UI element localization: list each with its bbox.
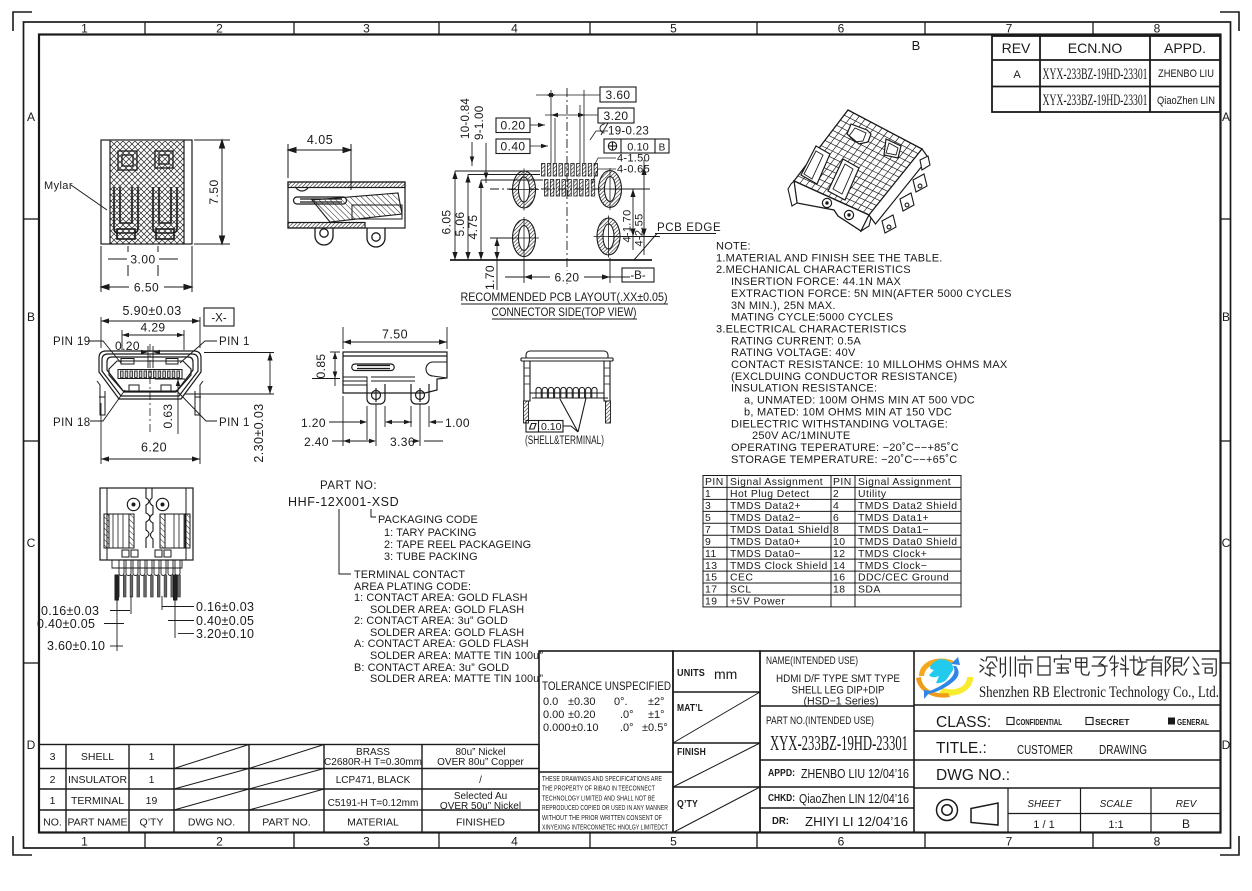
svg-text:PCB EDGE: PCB EDGE [657,222,721,234]
svg-text:2: 2 [216,22,223,36]
svg-text:0.16±0.03: 0.16±0.03 [196,600,254,614]
svg-text:5: 5 [705,513,711,524]
svg-text:1: 1 [705,489,711,500]
svg-text:7.50: 7.50 [207,179,221,204]
svg-text:mm: mm [714,666,737,682]
svg-text:6.05: 6.05 [440,210,454,235]
svg-text:DRAWING: DRAWING [1099,743,1147,757]
svg-text:6: 6 [838,835,845,849]
svg-text:REV: REV [1002,40,1031,56]
svg-text:PART NO.: PART NO. [262,817,310,829]
svg-text:1: 1 [81,835,88,849]
svg-text:UNITS: UNITS [677,668,705,679]
svg-text:Utility: Utility [858,489,887,500]
svg-text:WITHOUT THE PRIOR WRITTEN CON: WITHOUT THE PRIOR WRITTEN CONSENT OF [542,813,662,822]
svg-text:TOLERANCE UNSPECIFIED: TOLERANCE UNSPECIFIED [542,681,671,693]
svg-text:5.06: 5.06 [453,212,467,237]
svg-text:GENERAL: GENERAL [1177,717,1209,727]
svg-text:TMDS Data2+: TMDS Data2+ [730,501,801,512]
svg-text:B: B [27,310,35,324]
svg-text:HHF-12X001-XSD: HHF-12X001-XSD [288,495,399,509]
svg-text:(HSD−1 Series): (HSD−1 Series) [804,696,879,708]
svg-text:+5V Power: +5V Power [730,597,785,608]
svg-text:1: 1 [81,22,88,36]
svg-text:0.20: 0.20 [115,339,140,353]
svg-text:OPERATING TEPERATURE: −20˚C−: OPERATING TEPERATURE: −20˚C−−+85˚C [731,442,959,454]
svg-text:PIN 18: PIN 18 [53,417,91,429]
svg-text:7: 7 [1006,22,1013,36]
svg-text:TERMINAL CONTACT: TERMINAL CONTACT [354,569,465,581]
svg-text:2: 2 [216,835,223,849]
svg-text:DDC/CEC Ground: DDC/CEC Ground [858,573,949,584]
svg-text:PART NO.(INTENDED USE): PART NO.(INTENDED USE) [766,715,874,727]
svg-text:7: 7 [705,525,711,536]
svg-text:A: A [1013,69,1021,81]
svg-text:TERMINAL: TERMINAL [71,795,124,807]
svg-text:±0.10: ±0.10 [571,722,598,734]
svg-text:1.70: 1.70 [483,265,497,290]
svg-text:(EXCLDUING CONDUCTOR RESISTA: (EXCLDUING CONDUCTOR RESISTANCE) [731,371,957,383]
svg-text:DR:: DR: [772,816,789,827]
svg-text:1.00: 1.00 [445,416,470,430]
svg-text:3: 3 [363,22,370,36]
svg-text:A: A [27,110,35,124]
svg-text:TMDS Clock−: TMDS Clock− [858,561,927,572]
svg-text:RATING CURRENT: 0.5A: RATING CURRENT: 0.5A [731,335,862,347]
svg-text:SOLDER AREA: MATTE TIN 100: SOLDER AREA: MATTE TIN 100u” [370,673,543,685]
svg-text:18: 18 [833,585,845,596]
svg-text:4: 4 [511,835,518,849]
svg-text:6: 6 [833,513,839,524]
svg-text:C: C [27,536,36,550]
svg-text:MATING CYCLE:5000 CYCLES: MATING CYCLE:5000 CYCLES [731,312,893,324]
svg-text:THE PROPERTY OF RIBAO IN TEECO: THE PROPERTY OF RIBAO IN TEECONNECT [542,784,655,793]
svg-text:A: CONTACT AREA: GOLD FLAS: A: CONTACT AREA: GOLD FLASH [354,638,529,650]
svg-text:±1°: ±1° [648,709,665,721]
svg-text:LCP471, BLACK: LCP471, BLACK [336,775,411,786]
svg-text:HDMI D/F TYPE SMT TYPE: HDMI D/F TYPE SMT TYPE [776,673,900,685]
svg-text:C: C [1222,536,1231,550]
svg-text:QiaoZhen LIN 12/04’16: QiaoZhen LIN 12/04’16 [799,792,909,806]
svg-text:5: 5 [670,835,677,849]
svg-text:±0.5°: ±0.5° [642,722,668,734]
svg-text:16: 16 [833,573,845,584]
svg-text:a, UNMATED: 100M OHMS MIN: a, UNMATED: 100M OHMS MIN AT 500 VDC [744,395,975,407]
svg-text:SECRET: SECRET [1095,717,1130,727]
svg-text:b, MATED: 10M OHMS MIN: b, MATED: 10M OHMS MIN AT 150 VDC [744,406,952,418]
svg-text:±2°: ±2° [648,696,665,708]
svg-text:3.ELECTRICAL CHARACTERISTICS: 3.ELECTRICAL CHARACTERISTICS [716,324,907,336]
svg-text:0.63: 0.63 [161,404,175,429]
svg-text:REV: REV [1176,799,1198,810]
svg-text:19-0.23: 19-0.23 [608,126,649,138]
svg-text:OVER 80u” Copper: OVER 80u” Copper [437,757,524,768]
svg-text:1:1: 1:1 [1108,819,1123,831]
svg-text:CLASS:: CLASS: [936,714,991,731]
svg-text:4.75: 4.75 [466,215,480,240]
svg-text:0.10: 0.10 [541,421,562,433]
svg-text:2: TAPE REEL PACKAGEING: 2: TAPE REEL PACKAGEING [384,539,531,551]
svg-text:OVER 50u” Nickel: OVER 50u” Nickel [440,801,521,812]
svg-text:SDA: SDA [858,585,881,596]
svg-text:13: 13 [705,561,717,572]
svg-text:D: D [27,738,36,752]
svg-text:(SHELL&TERMINAL): (SHELL&TERMINAL) [525,435,604,447]
svg-text:CEC: CEC [730,573,753,584]
svg-text:2: CONTACT AREA: 3u” GOLD: 2: CONTACT AREA: 3u” GOLD [354,615,508,627]
svg-text:1: 1 [50,795,56,807]
svg-text:15: 15 [705,573,717,584]
svg-text:-B-: -B- [630,270,646,282]
svg-text:DWG NO.:: DWG NO.: [936,767,1010,784]
svg-text:THESE DRAWINGS AND SPECIFICATI: THESE DRAWINGS AND SPECIFICATIONS ARE [542,774,662,783]
svg-text:XYX-233BZ-19HD-23301: XYX-233BZ-19HD-23301 [1043,92,1148,109]
svg-text:0.40±0.05: 0.40±0.05 [37,617,95,631]
svg-text:3N MIN.), 25N MAX.: 3N MIN.), 25N MAX. [731,300,836,312]
svg-text:TMDS Data1+: TMDS Data1+ [858,513,929,524]
svg-text:PIN 1: PIN 1 [219,417,250,429]
svg-text:APPD:: APPD: [768,768,795,779]
svg-text:APPD.: APPD. [1164,40,1206,56]
svg-text:A: A [1222,110,1230,124]
svg-text:3.20±0.10: 3.20±0.10 [196,627,254,641]
svg-text:0.16±0.03: 0.16±0.03 [41,604,99,618]
svg-text:6.50: 6.50 [134,281,159,295]
svg-text:Signal Assignment: Signal Assignment [730,477,823,488]
svg-text:12: 12 [833,549,845,560]
svg-text:REPRODUCED COPIED OR USED IN A: REPRODUCED COPIED OR USED IN ANY MANNER [542,803,668,812]
svg-text:6: 6 [838,22,845,36]
svg-text:TECHNOLOGY LIMITED AND SHALL N: TECHNOLOGY LIMITED AND SHALL NOT BE [542,793,655,802]
svg-text:XYX-233BZ-19HD-23301: XYX-233BZ-19HD-23301 [770,731,908,755]
svg-text:ZHENBO LIU: ZHENBO LIU [1158,68,1214,80]
svg-text:6.20: 6.20 [555,271,580,285]
svg-text:10-0.84: 10-0.84 [460,98,472,139]
svg-text:.0°: .0° [620,722,634,734]
svg-text:QiaoZhen LIN: QiaoZhen LIN [1157,95,1215,107]
svg-text:7: 7 [1006,835,1013,849]
svg-text:Shenzhen RB Electronic Technol: Shenzhen RB Electronic Technology Co., L… [979,684,1219,701]
svg-text:19: 19 [705,597,717,608]
svg-text:TMDS Clock Shield: TMDS Clock Shield [730,561,828,572]
svg-text:C2680R-H T=0.30mm: C2680R-H T=0.30mm [324,757,422,768]
svg-text:B: B [659,143,666,154]
svg-text:1 / 1: 1 / 1 [1033,819,1054,831]
svg-text:NOTE:: NOTE: [716,241,751,253]
svg-text:RATING VOLTAGE: 40V: RATING VOLTAGE: 40V [731,347,856,359]
svg-text:7.50: 7.50 [382,328,408,342]
svg-text:TMDS Data0 Shield: TMDS Data0 Shield [858,537,957,548]
svg-text:TITLE.:: TITLE.: [936,740,987,757]
svg-text:0.40: 0.40 [501,140,526,154]
svg-text:3: 3 [705,501,711,512]
svg-text:TMDS Clock+: TMDS Clock+ [858,549,927,560]
svg-text:PIN 19: PIN 19 [53,336,91,348]
svg-text:PACKAGING CODE: PACKAGING CODE [378,514,478,526]
svg-text:1: CONTACT AREA: GOLD FLAS: 1: CONTACT AREA: GOLD FLASH [354,592,528,604]
svg-text:B: B [912,38,921,53]
svg-text:0.0: 0.0 [543,696,558,708]
svg-text:Q’TY: Q’TY [140,817,164,829]
svg-text:0.85: 0.85 [314,354,328,379]
svg-text:0.00: 0.00 [543,709,564,721]
svg-text:DWG NO.: DWG NO. [188,817,235,829]
svg-text:3.60: 3.60 [606,88,631,102]
svg-text:3.60±0.10: 3.60±0.10 [47,639,105,653]
svg-text:3: 3 [50,751,56,763]
svg-text:Q’TY: Q’TY [677,799,698,810]
svg-text:CHKD:: CHKD: [768,793,795,804]
svg-text:B: B [1182,817,1190,831]
svg-text:4-1.70: 4-1.70 [622,210,634,243]
svg-text:8: 8 [1154,22,1161,36]
svg-text:1: 1 [149,751,155,763]
svg-text:2: 2 [50,774,56,786]
svg-text:CUSTOMER: CUSTOMER [1017,743,1073,757]
svg-text:1.MATERIAL AND FINISH SEE: 1.MATERIAL AND FINISH SEE THE TABLE. [716,252,943,264]
svg-text:PIN: PIN [705,477,724,488]
svg-text:5.90±0.03: 5.90±0.03 [122,304,181,318]
svg-text:SCALE: SCALE [1100,799,1133,810]
svg-text:STORAGE TEMPERATURE: −20˚C−−: STORAGE TEMPERATURE: −20˚C−−+65˚C [731,454,958,466]
svg-text:PIN: PIN [833,477,852,488]
svg-text:RECOMMENDED PCB LAYOUT(.XX±0: RECOMMENDED PCB LAYOUT(.XX±0.05) [461,290,668,304]
svg-text:Signal Assignment: Signal Assignment [858,477,951,488]
svg-text:TMDS Data0+: TMDS Data0+ [730,537,801,548]
svg-text:D: D [1222,738,1231,752]
svg-text:6.20: 6.20 [141,441,167,455]
svg-text:ZHIYI LI 12/04’16: ZHIYI LI 12/04’16 [805,815,908,829]
svg-text:MAT’L: MAT’L [677,703,703,714]
svg-text:XYX-233BZ-19HD-23301: XYX-233BZ-19HD-23301 [1043,66,1148,83]
svg-text:PART NAME: PART NAME [67,817,127,829]
svg-text:250V AC/1MINUTE: 250V AC/1MINUTE [752,430,851,442]
svg-text:PART NO:: PART NO: [320,480,377,492]
svg-text:2.MECHANICAL CHARACTERISTICS: 2.MECHANICAL CHARACTERISTICS [716,264,911,276]
svg-text:-X-: -X- [211,313,227,325]
svg-text:INSERTION FORCE: 44.1N MA: INSERTION FORCE: 44.1N MAX [731,276,902,288]
svg-text:NAME(INTENDED USE): NAME(INTENDED USE) [766,655,858,667]
svg-text:INSULATOR: INSULATOR [68,774,128,786]
svg-text:SOLDER AREA: MATTE TIN 100: SOLDER AREA: MATTE TIN 100u” [370,650,543,662]
svg-text:Hot Plug Detect: Hot Plug Detect [730,489,810,500]
svg-text:SCL: SCL [730,585,752,596]
svg-text:CONNECTOR SIDE(TOP VIEW): CONNECTOR SIDE(TOP VIEW) [492,305,637,319]
svg-text:2: 2 [833,489,839,500]
svg-text:3.20: 3.20 [604,109,629,123]
svg-text:14: 14 [833,561,845,572]
svg-text:2.40: 2.40 [304,435,329,449]
svg-text:19: 19 [146,795,158,807]
svg-text:1: 1 [149,774,155,786]
svg-text:4: 4 [511,22,518,36]
svg-text:0°.: 0°. [614,696,628,708]
svg-text:1: TARY PACKING: 1: TARY PACKING [384,527,477,539]
svg-text:ZHENBO LIU 12/04’16: ZHENBO LIU 12/04’16 [801,767,909,781]
svg-text:±0.20: ±0.20 [568,709,595,721]
svg-text:3.36: 3.36 [390,435,415,449]
svg-text:MATERIAL: MATERIAL [347,817,399,829]
svg-text:4-2.55: 4-2.55 [634,214,646,247]
svg-text:TMDS Data0−: TMDS Data0− [730,549,801,560]
svg-text:XINYEXING INTERCONNETEC HNOLGY: XINYEXING INTERCONNETEC HNOLGY LIMITEDCT [542,823,668,832]
svg-text:PIN 1: PIN 1 [219,336,250,348]
svg-text:INSULATION RESISTANCE:: INSULATION RESISTANCE: [731,383,877,395]
svg-text:9-1.00: 9-1.00 [474,106,486,140]
svg-text:8: 8 [833,525,839,536]
svg-text:10: 10 [833,537,845,548]
svg-text:/: / [479,775,482,786]
svg-text:C5191-H T=0.12mm: C5191-H T=0.12mm [328,798,419,809]
svg-text:FINISH: FINISH [677,747,706,758]
svg-text:4: 4 [833,501,839,512]
svg-text:.0°: .0° [620,709,634,721]
svg-text:1.20: 1.20 [301,416,326,430]
svg-text:CONFIDENTIAL: CONFIDENTIAL [1016,717,1062,727]
svg-text:3.00: 3.00 [130,253,155,267]
svg-text:0.20: 0.20 [501,119,526,133]
svg-text:11: 11 [705,549,717,560]
svg-text:0.000: 0.000 [543,722,571,734]
svg-text:TMDS Data1 Shield: TMDS Data1 Shield [730,525,829,536]
svg-text:8: 8 [1154,835,1161,849]
svg-text:EXTRACTION FORCE: 5N MIN(AF: EXTRACTION FORCE: 5N MIN(AFTER 5000 CYCL… [731,288,1012,300]
svg-text:DIELECTRIC WITHSTANDING VOLT: DIELECTRIC WITHSTANDING VOLTAGE: [731,418,948,430]
svg-text:±0.30: ±0.30 [568,696,595,708]
svg-text:B: B [1222,310,1230,324]
svg-text:2.30±0.03: 2.30±0.03 [252,403,266,462]
svg-text:5: 5 [670,22,677,36]
svg-text:ECN.NO: ECN.NO [1068,40,1123,56]
svg-text:TMDS Data2 Shield: TMDS Data2 Shield [858,501,957,512]
svg-text:3: 3 [363,835,370,849]
svg-text:4.05: 4.05 [307,133,333,147]
svg-text:TMDS Data2−: TMDS Data2− [730,513,801,524]
svg-text:9: 9 [705,537,711,548]
svg-text:0.40±0.05: 0.40±0.05 [196,614,254,628]
svg-text:Mylar: Mylar [44,180,73,192]
svg-text:17: 17 [705,585,717,596]
svg-text:TMDS Data1−: TMDS Data1− [858,525,929,536]
svg-text:CONTACT RESISTANCE: 10 MILL: CONTACT RESISTANCE: 10 MILLOHMS OHMS MAX [731,359,1008,371]
svg-text:4-0.65: 4-0.65 [617,164,650,176]
svg-text:SHEET: SHEET [1027,799,1061,810]
svg-text:4.29: 4.29 [141,321,166,335]
svg-text:FINISHED: FINISHED [456,817,505,829]
svg-text:3: TUBE PACKING: 3: TUBE PACKING [384,551,478,563]
svg-text:SHELL: SHELL [81,751,114,763]
svg-text:NO.: NO. [43,817,62,829]
